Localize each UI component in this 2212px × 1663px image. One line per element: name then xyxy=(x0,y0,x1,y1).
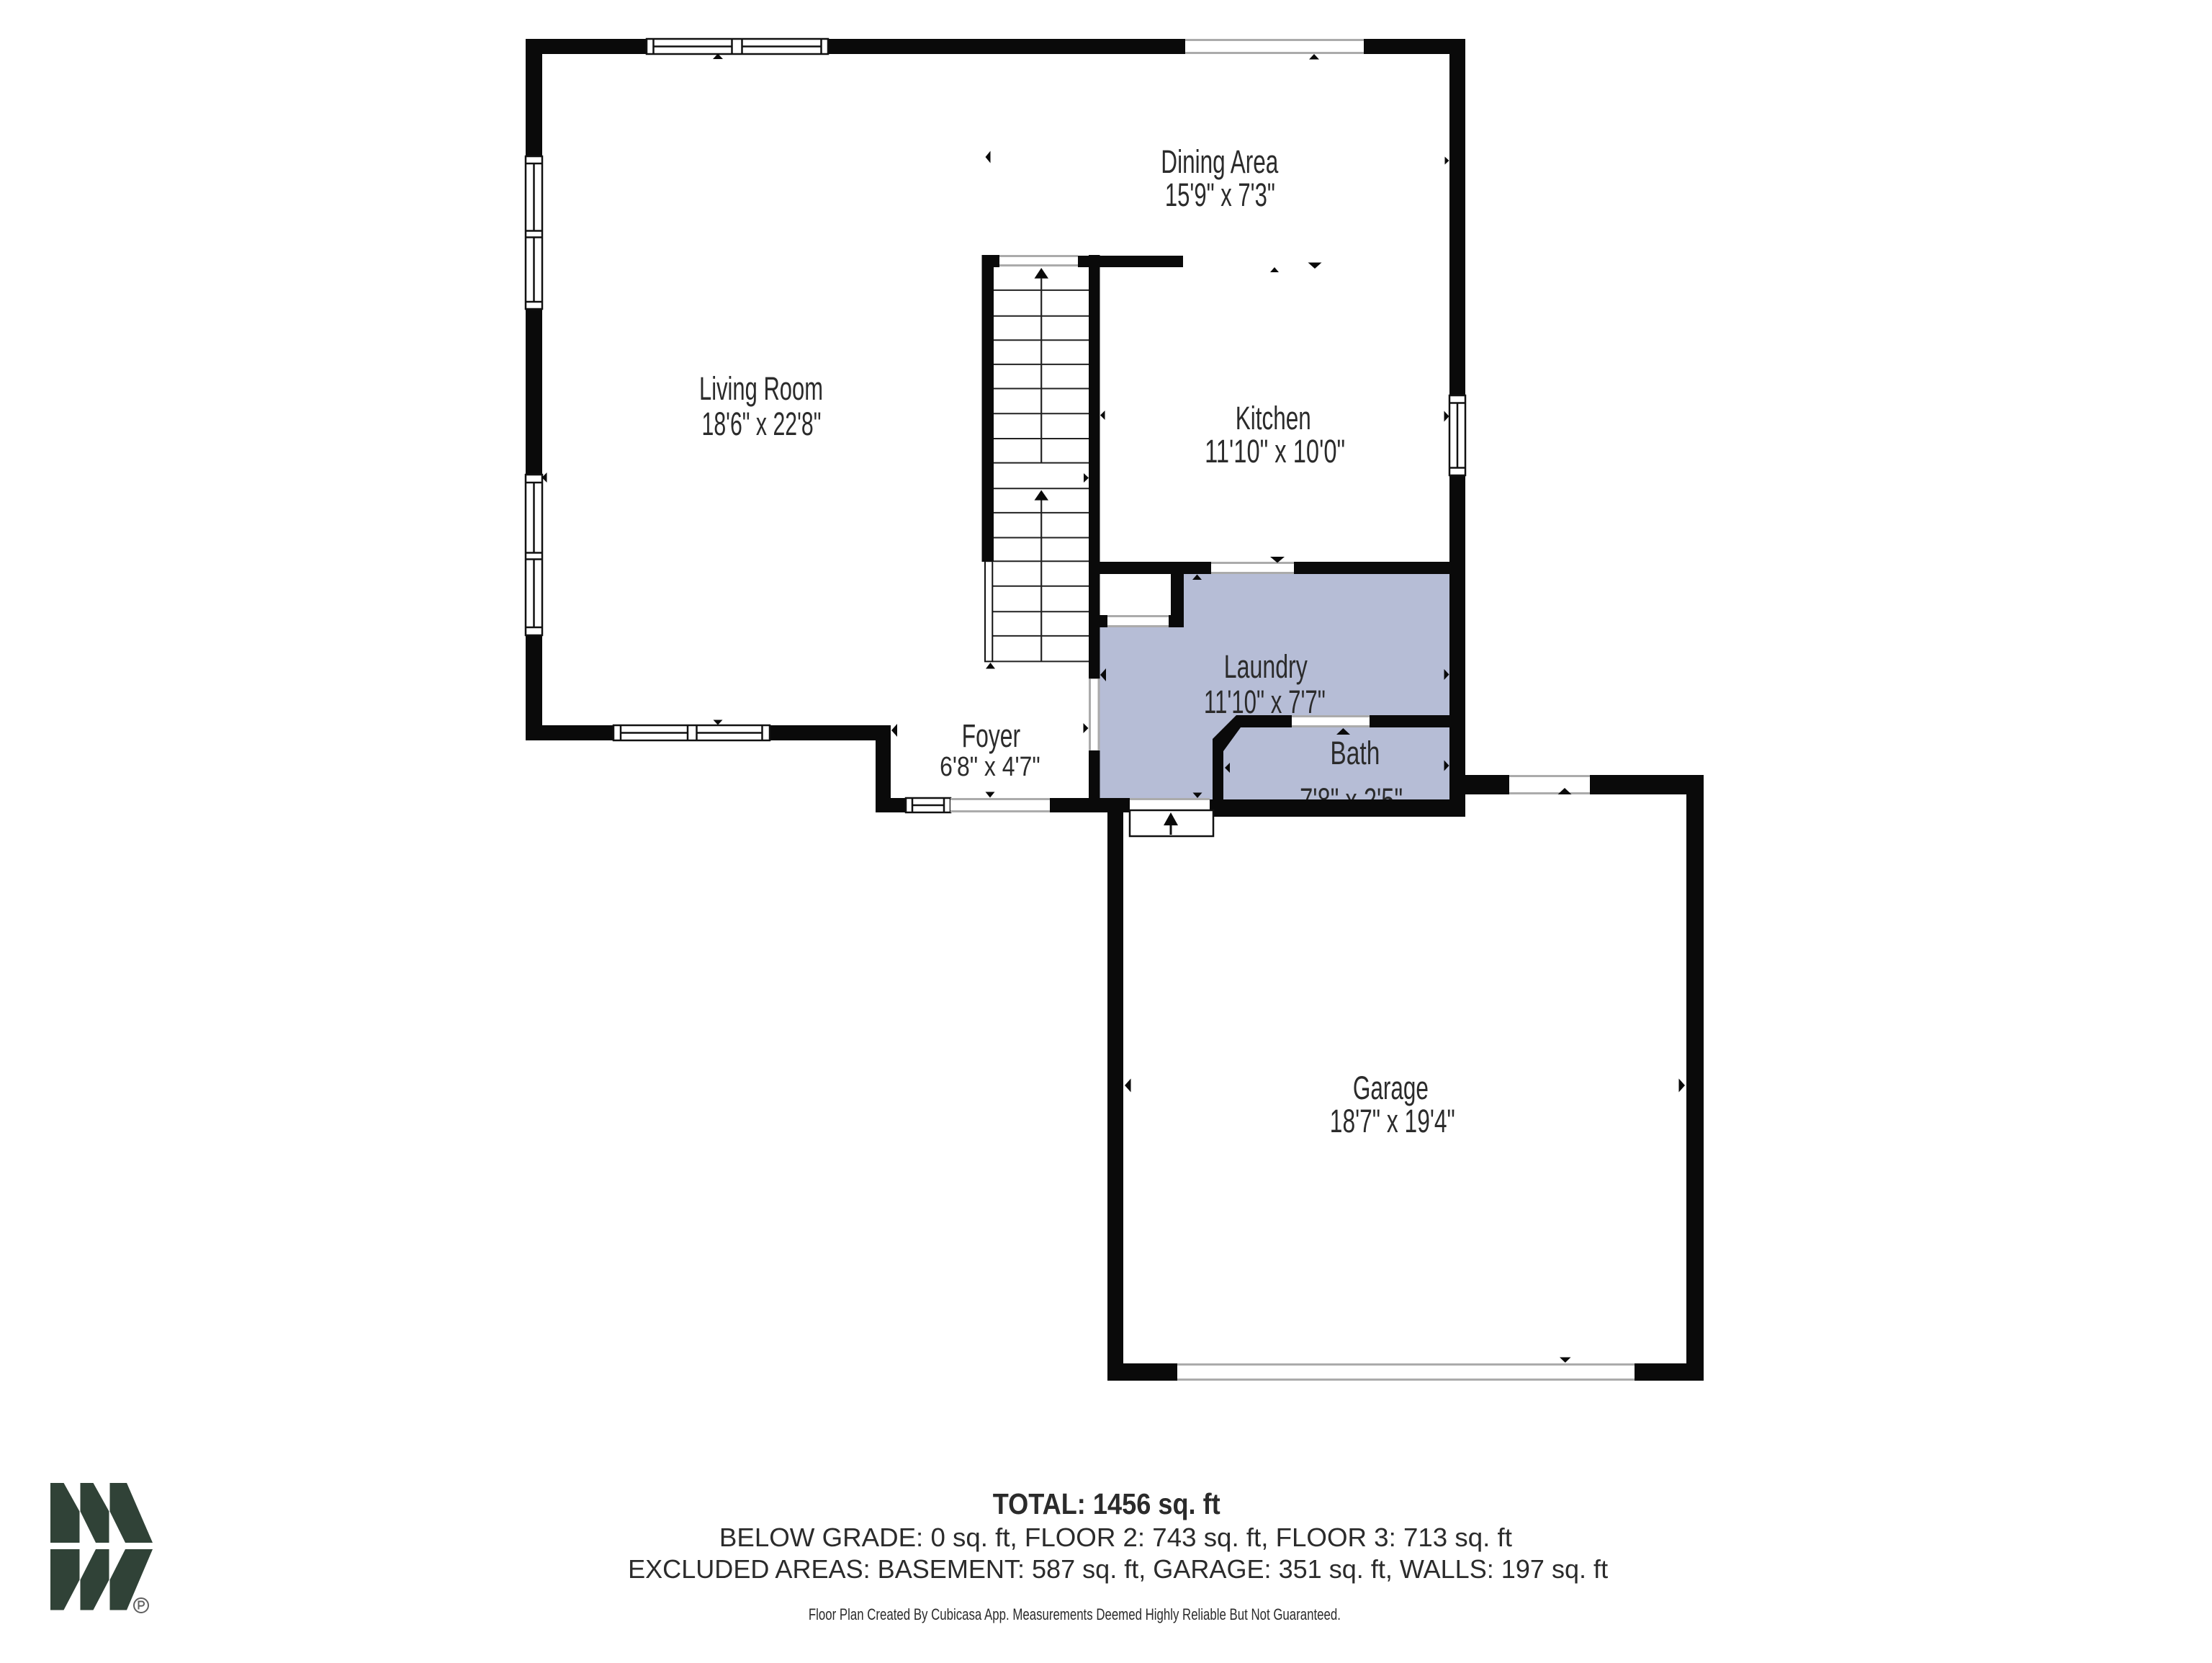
svg-text:18'7" x 19'4": 18'7" x 19'4" xyxy=(1330,1103,1455,1139)
svg-text:EXCLUDED AREAS: BASEMENT: 587: EXCLUDED AREAS: BASEMENT: 587 sq. ft, GA… xyxy=(628,1554,1608,1584)
svg-text:TOTAL: 1456 sq. ft: TOTAL: 1456 sq. ft xyxy=(993,1487,1220,1520)
svg-text:Foyer: Foyer xyxy=(962,717,1021,754)
svg-text:11'10" x 10'0": 11'10" x 10'0" xyxy=(1205,433,1345,470)
svg-text:Kitchen: Kitchen xyxy=(1236,400,1311,436)
svg-text:18'6" x 22'8": 18'6" x 22'8" xyxy=(702,405,822,442)
svg-text:Floor Plan Created By Cubicasa: Floor Plan Created By Cubicasa App. Meas… xyxy=(809,1605,1341,1623)
svg-text:BELOW GRADE: 0 sq. ft, FLOOR 2: BELOW GRADE: 0 sq. ft, FLOOR 2: 743 sq. … xyxy=(719,1523,1512,1552)
svg-text:Garage: Garage xyxy=(1353,1070,1429,1106)
svg-text:Dining Area: Dining Area xyxy=(1161,143,1279,180)
svg-text:Laundry: Laundry xyxy=(1224,648,1308,685)
svg-text:Living Room: Living Room xyxy=(699,370,823,407)
svg-text:6'8" x 4'7": 6'8" x 4'7" xyxy=(940,752,1040,782)
svg-text:Bath: Bath xyxy=(1330,735,1380,771)
svg-text:15'9" x 7'3": 15'9" x 7'3" xyxy=(1165,176,1275,213)
svg-text:11'10" x 7'7": 11'10" x 7'7" xyxy=(1204,683,1326,720)
